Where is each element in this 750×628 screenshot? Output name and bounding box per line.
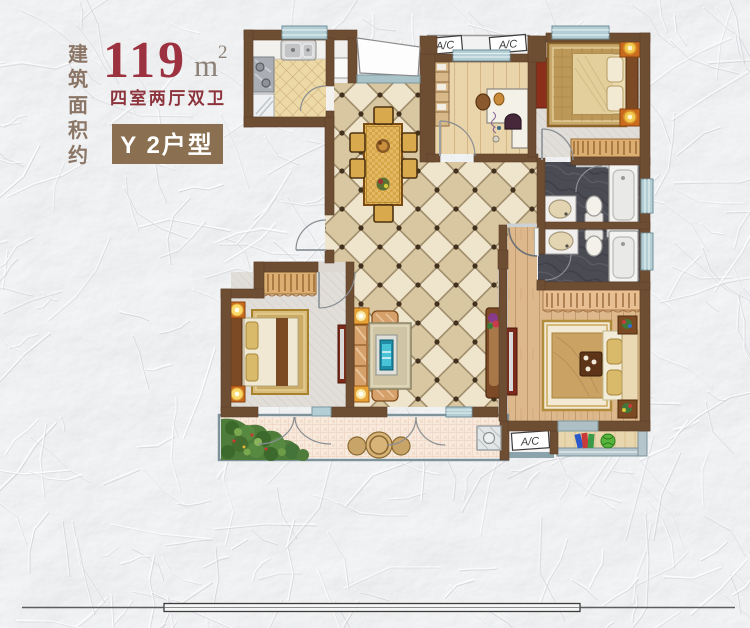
svg-text:m: m <box>194 48 218 83</box>
svg-text:约: 约 <box>68 143 88 167</box>
svg-text:119: 119 <box>103 32 187 89</box>
svg-text:积: 积 <box>68 119 88 142</box>
svg-text:A/C: A/C <box>520 435 540 448</box>
svg-text:Y 2户型: Y 2户型 <box>120 131 214 159</box>
svg-text:建: 建 <box>68 42 88 66</box>
svg-text:2: 2 <box>218 42 228 63</box>
svg-text:筑: 筑 <box>68 67 88 91</box>
svg-text:四室两厅双卫: 四室两厅双卫 <box>110 88 226 108</box>
svg-text:面: 面 <box>68 95 88 117</box>
svg-text:A/C: A/C <box>434 39 454 53</box>
